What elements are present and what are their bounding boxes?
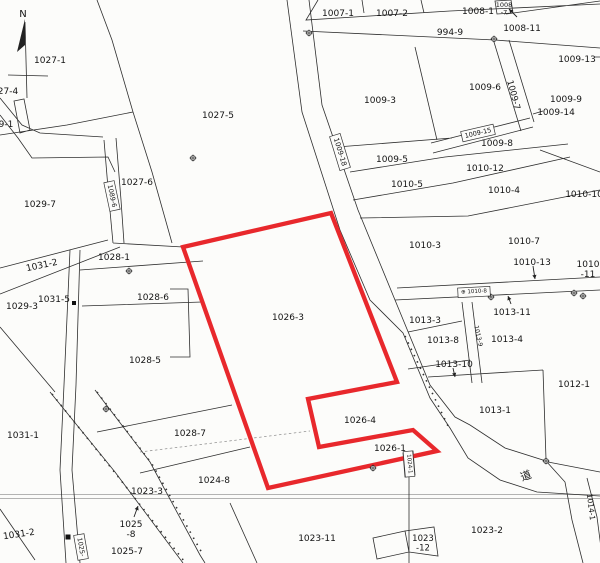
parcel-label: 1008-11 (503, 24, 541, 34)
parcel-label: 1013-1 (479, 406, 511, 416)
parcel-label: 1031-1 (7, 431, 39, 441)
parcel-label: 1009-9 (550, 95, 582, 105)
parcel-label: 1029-3 (6, 302, 38, 312)
north-arrow-needle (17, 19, 25, 52)
parcel-label: 1014-1 (585, 493, 597, 521)
survey-point-icon (580, 293, 587, 300)
parcel-label: 1023-2 (471, 526, 503, 536)
parcel-label: 1010 (577, 260, 600, 270)
pointer-arrow (507, 296, 511, 304)
road-lines (287, 0, 600, 563)
parcel-label: 1024-8 (198, 476, 230, 486)
parcel-label: 1023 (412, 534, 434, 544)
parcel-label: 1026-3 (272, 313, 304, 323)
parcel-label: 1008-1 (462, 7, 494, 17)
cadastral-map-canvas: N 1027-127-49-11029-71027-51027-61031-21… (0, 0, 600, 563)
parcel-label: 1028-6 (137, 293, 169, 303)
parcel-label: -12 (416, 544, 430, 554)
parcel-label: 1029-7 (24, 200, 56, 210)
parcel-label: -8 (127, 530, 136, 540)
parcel-label: 9-1 (0, 120, 13, 130)
parcel-label: 1009-5 (376, 155, 408, 165)
parcel-label: 1031-5 (38, 295, 70, 305)
parcel-label: 1010-5 (391, 180, 423, 190)
parcel-label: 1028-1 (98, 253, 130, 263)
parcel-label: 1031-2 (3, 528, 36, 542)
parcel-label: 1028-5 (129, 356, 161, 366)
parcel-label: 1010-4 (488, 186, 520, 196)
parcel-label: 1027-5 (202, 111, 234, 121)
parcel-label: 1028-7 (174, 429, 206, 439)
survey-point-icon (126, 268, 133, 275)
parcel-label: 1007-1 (322, 9, 354, 19)
parcel-label: 1013-4 (491, 335, 523, 345)
parcel-label: 道 (518, 467, 533, 484)
parcel-label: 1027-6 (121, 178, 153, 188)
survey-point-icon (190, 155, 197, 162)
parcel-labels: 1027-127-49-11029-71027-51027-61031-2102… (0, 1, 600, 560)
survey-markers (66, 30, 587, 540)
north-arrow-label: N (19, 9, 26, 20)
parcel-label: 1012-1 (558, 380, 590, 390)
survey-point-icon (571, 290, 578, 297)
parcel-label: 1013-8 (427, 336, 459, 346)
parcel-label: 1025 (120, 520, 143, 530)
parcel-label: 1009-14 (537, 108, 575, 118)
parcel-label: -7 (501, 9, 507, 17)
boundary-marker-square (72, 301, 76, 305)
parcel-label: 1026-1 (374, 444, 406, 454)
parcel-label: 1010-12 (466, 164, 504, 174)
parcel-label: 1013-11 (493, 308, 531, 318)
parcel-label: 1009-8 (481, 139, 513, 149)
parcel-label: 1013-10 (435, 360, 473, 370)
parcel-label: 994-9 (437, 28, 463, 38)
cadastral-map: N 1027-127-49-11029-71027-51027-61031-21… (0, 0, 600, 563)
parcel-label: -11 (581, 270, 596, 280)
parcel-label: 1010-13 (513, 258, 551, 268)
parcel-label: 1013-9 (472, 325, 483, 347)
parcel-label: 1010-3 (409, 241, 441, 251)
parcel-label: 1013-3 (409, 316, 441, 326)
parcel-label: 1010-7 (508, 237, 540, 247)
survey-point-icon (103, 406, 110, 413)
parcel-label: 1009-7 (504, 79, 521, 111)
parcel-label: 1025-7 (111, 547, 143, 557)
parcel-label: 1009-6 (469, 83, 501, 93)
parcel-label: 1009-13 (558, 55, 596, 65)
parcel-label: 1023-3 (131, 487, 163, 497)
parcel-label: 27-4 (0, 87, 18, 97)
parcel-label: 1007-2 (376, 9, 408, 19)
boundary-marker-square (66, 535, 71, 540)
survey-point-icon (491, 36, 498, 43)
survey-point-icon (306, 30, 313, 37)
parcel-label: 1010-10 (565, 190, 600, 200)
parcel-label: 1026-4 (344, 416, 376, 426)
parcel-label: 1009-3 (364, 96, 396, 106)
parcel-label: 1027-1 (34, 56, 66, 66)
pointer-arrow (134, 506, 139, 517)
parcel-label: 1023-11 (298, 534, 336, 544)
